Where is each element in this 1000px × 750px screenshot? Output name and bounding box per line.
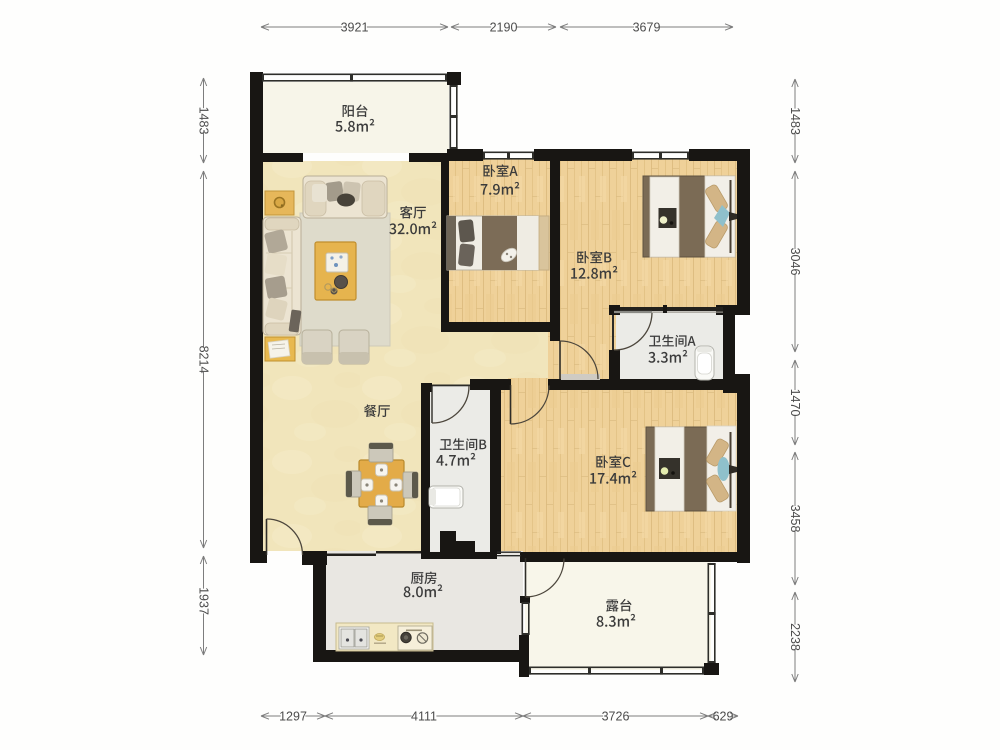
svg-text:3921: 3921 — [341, 20, 369, 34]
svg-text:1937: 1937 — [197, 587, 211, 615]
svg-text:4111: 4111 — [411, 709, 437, 723]
svg-text:8214: 8214 — [197, 346, 211, 374]
svg-text:3458: 3458 — [788, 505, 802, 533]
svg-text:1470: 1470 — [788, 389, 802, 417]
svg-text:3726: 3726 — [602, 709, 630, 723]
svg-text:2190: 2190 — [490, 20, 518, 34]
svg-text:629: 629 — [713, 709, 734, 723]
svg-text:1297: 1297 — [279, 709, 307, 723]
svg-text:1483: 1483 — [788, 107, 802, 135]
svg-text:1483: 1483 — [197, 107, 211, 135]
svg-text:2238: 2238 — [788, 623, 802, 651]
svg-text:3679: 3679 — [633, 20, 661, 34]
svg-text:3046: 3046 — [788, 248, 802, 276]
